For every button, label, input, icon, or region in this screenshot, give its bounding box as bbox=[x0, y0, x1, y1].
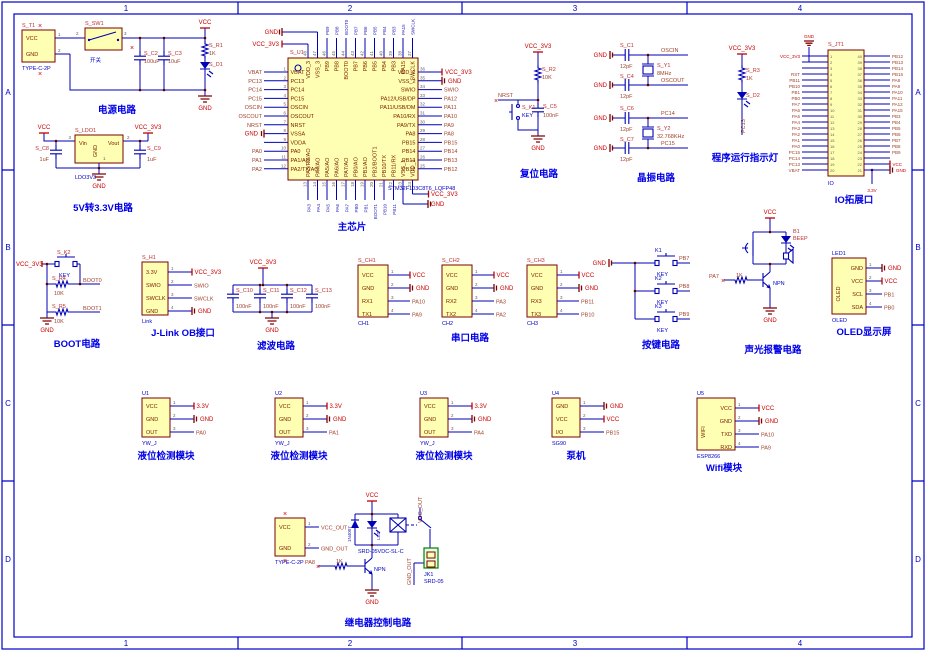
schematic-canvas[interactable]: 1 2 3 4 1 2 3 4 A B C D A B C D S_T1TYPE… bbox=[0, 0, 926, 651]
label: 1K bbox=[746, 76, 753, 82]
module-alarm[interactable]: VCC B1BEEP 1K PA7 × NPN GND 声光报警电路 bbox=[709, 210, 808, 356]
module-crystal[interactable]: GND GND GND GND S_C112pF OSCIN S_Y18MHz … bbox=[594, 43, 688, 184]
label: OSCOUT bbox=[291, 114, 315, 120]
label: PB7 bbox=[354, 61, 360, 71]
io-header-40pin[interactable]: S_JT1IO1VCC_3V3234RST5PB116PB107PB18PB09… bbox=[780, 42, 907, 187]
label: PA4 bbox=[792, 120, 801, 125]
caption-yw2: 液位检测模块 bbox=[270, 450, 328, 462]
label: 28 bbox=[858, 126, 863, 131]
label: NPN bbox=[773, 281, 785, 287]
label: VSS_3 bbox=[316, 61, 322, 78]
shape bbox=[98, 167, 101, 170]
label: OUT bbox=[424, 430, 436, 436]
label: PB6 bbox=[363, 61, 369, 71]
label: GND bbox=[531, 146, 545, 152]
wire bbox=[509, 104, 512, 120]
label: U1 bbox=[142, 391, 149, 397]
label: PA6 bbox=[335, 204, 340, 213]
label: PA0 bbox=[792, 144, 801, 149]
zone-label: A bbox=[5, 88, 11, 97]
label: U5 bbox=[697, 391, 704, 397]
label: VCC_3V3 bbox=[431, 192, 458, 198]
ldo-body[interactable] bbox=[75, 135, 123, 163]
label: PA0 bbox=[291, 149, 301, 155]
uart-ch3-connector[interactable]: S_CH3CH3VCC1VCCGND2GNDRX33PB11TX34PB10 bbox=[527, 258, 599, 327]
label: 3.3V bbox=[146, 270, 158, 276]
label: VCC_3V3 bbox=[195, 270, 222, 276]
label: PB11 bbox=[789, 78, 800, 83]
label: PB9 bbox=[679, 312, 689, 318]
label: PA1 bbox=[329, 431, 339, 437]
label: GND bbox=[279, 417, 291, 423]
label: TYPE-C-2P bbox=[275, 560, 304, 566]
label: PB3 bbox=[392, 61, 398, 71]
label: 42 bbox=[360, 50, 365, 56]
label: 31 bbox=[858, 108, 863, 113]
label: 38 bbox=[398, 50, 403, 56]
gnd-symbol bbox=[763, 308, 777, 314]
label: PA7 bbox=[792, 102, 801, 107]
crystal-8mhz-icon bbox=[642, 64, 654, 76]
label: KEY bbox=[657, 328, 668, 334]
zone-label: 1 bbox=[124, 4, 129, 13]
net-label-nrst: NRST bbox=[498, 93, 514, 99]
shape bbox=[55, 140, 58, 143]
label: LED1 bbox=[832, 251, 846, 257]
label: PA0 bbox=[252, 149, 262, 155]
shape bbox=[134, 145, 146, 159]
module-jlink[interactable]: S_H1Link3.3V1VCC_3V3SWIO2SWIOSWCLK3SWCLK… bbox=[142, 255, 222, 339]
no-erc-mark: × bbox=[130, 45, 134, 52]
shape bbox=[620, 112, 634, 124]
key3-icon bbox=[655, 309, 677, 322]
label: PB5 bbox=[373, 61, 379, 71]
label: PB0/AO bbox=[354, 156, 360, 177]
shape bbox=[517, 117, 520, 120]
label: S_R2 bbox=[542, 67, 556, 73]
label: PB12 bbox=[892, 54, 904, 59]
label: GND bbox=[531, 286, 543, 292]
label: S_T1 bbox=[22, 23, 35, 29]
gnd-symbol bbox=[265, 318, 279, 324]
key1-icon bbox=[655, 253, 677, 266]
label: PC14 bbox=[661, 111, 675, 117]
label: PA6/AO bbox=[335, 157, 341, 177]
label: 3 bbox=[475, 295, 478, 300]
label: 27 bbox=[858, 132, 863, 137]
label: GND bbox=[896, 168, 907, 173]
label: 33 bbox=[858, 96, 863, 101]
label: VCC bbox=[762, 406, 775, 412]
module-pump[interactable]: U4SG90GND1GNDVCC2VCCI/O3PB15 泵机 bbox=[552, 391, 624, 462]
label: VCC_OUT bbox=[418, 496, 424, 523]
label: GND bbox=[279, 546, 291, 552]
label: PB8 bbox=[892, 144, 901, 149]
shape bbox=[117, 39, 119, 41]
label: PB11/RX bbox=[392, 154, 398, 177]
label: PA9 bbox=[412, 313, 422, 319]
label: VCC bbox=[362, 273, 374, 279]
caption-pump: 泵机 bbox=[565, 450, 586, 462]
shape bbox=[427, 561, 435, 567]
label: PB4 bbox=[892, 120, 901, 125]
label: RX2 bbox=[446, 299, 457, 305]
label: PB10 bbox=[789, 84, 801, 89]
module-level-sensor-2[interactable]: U2YW_JVCC13.3VGND2GNDOUT3PA1 液位检测模块 bbox=[270, 391, 347, 462]
label: SWCLK bbox=[146, 296, 166, 302]
outer-border bbox=[2, 2, 924, 649]
shape bbox=[535, 65, 541, 83]
label: S_C10 bbox=[236, 288, 253, 294]
label: 38 bbox=[858, 66, 863, 71]
label: PA8 bbox=[305, 560, 315, 566]
label: 39 bbox=[388, 50, 393, 56]
label: PA4 bbox=[474, 431, 484, 437]
module-oled[interactable]: LED1OLEDOLEDGND1GNDVCC2VCCSCL3PB1SDA4PB0… bbox=[832, 251, 902, 338]
label: PA7/AO bbox=[344, 157, 350, 177]
label: PA8 bbox=[406, 132, 416, 138]
label: S_Y1 bbox=[657, 63, 670, 69]
label: GND bbox=[556, 404, 568, 410]
label: GND bbox=[265, 30, 279, 36]
caption-serial: 串口电路 bbox=[451, 332, 490, 344]
label: 3 bbox=[451, 426, 454, 431]
label: 16 bbox=[830, 144, 835, 149]
shape bbox=[79, 283, 82, 286]
label: PA5/AO bbox=[325, 157, 331, 177]
npn-transistor-icon bbox=[763, 272, 770, 288]
label: U3 bbox=[420, 391, 427, 397]
jlink-header[interactable]: S_H1Link3.3V1VCC_3V3SWIO2SWIOSWCLK3SWCLK… bbox=[142, 255, 222, 325]
shape bbox=[620, 79, 634, 91]
refdes: S_SW1 bbox=[85, 21, 104, 27]
label: PB13 bbox=[444, 158, 457, 164]
wire bbox=[390, 518, 406, 532]
label: 1 bbox=[308, 521, 311, 526]
shape bbox=[620, 142, 634, 154]
zone-label: 3 bbox=[573, 4, 578, 13]
label: VDD_3 bbox=[306, 61, 312, 79]
label: 1 bbox=[171, 266, 174, 271]
module-serial[interactable]: S_CH1CH1VCC1VCCGND2GNDRX13PA10TX14PA9 S_… bbox=[358, 258, 599, 344]
label: YW_J bbox=[142, 441, 157, 447]
label: PB14 bbox=[892, 66, 904, 71]
uart-ch2-connector[interactable]: S_CH2CH2VCC1VCCGND2GNDRX23PA3TX24PA2 bbox=[442, 258, 514, 327]
label: SWCLK bbox=[411, 61, 417, 81]
module-reset[interactable]: VCC_3V3 S_R210K NRST × S_K1KEY S_C5100nF… bbox=[494, 44, 559, 180]
module-io-expansion[interactable]: GND 3.3V S_JT1IO1VCC_3V3234RST5PB116PB10… bbox=[780, 34, 907, 206]
label: 2 bbox=[283, 75, 286, 80]
label: 3 bbox=[306, 426, 309, 431]
label: S_R1 bbox=[209, 43, 223, 49]
label: PA11 bbox=[444, 105, 457, 111]
module-power-supply[interactable]: S_T1TYPE-C-2PVCC1GND2 VCC GND S_SW1 开关 2… bbox=[22, 20, 223, 116]
module-wifi[interactable]: U5ESP8266WIFIVCC1VCCGND2GNDTXD3PA10RXD4P… bbox=[697, 391, 779, 474]
caption-yw3: 液位检测模块 bbox=[415, 450, 473, 462]
wire bbox=[610, 51, 613, 152]
label: GND bbox=[40, 328, 54, 334]
label: PA9 bbox=[892, 84, 901, 89]
module-run-led[interactable]: VCC_3V3 S_R31K S_D2 PC13 程序运行指示灯 bbox=[712, 46, 779, 164]
label: SWIO bbox=[146, 283, 161, 289]
wifi-connector[interactable]: U5ESP8266WIFIVCC1VCCGND2GNDTXD3PA10RXD4P… bbox=[697, 391, 779, 460]
label: S_C2 bbox=[144, 51, 158, 57]
label: VCC bbox=[531, 273, 543, 279]
label: TX1 bbox=[362, 312, 372, 318]
label: VCC_3V3 bbox=[252, 42, 279, 48]
label: PC15 bbox=[248, 96, 262, 102]
label: VCC bbox=[146, 404, 158, 410]
label: 21 bbox=[379, 182, 384, 188]
label: PA8 bbox=[892, 78, 901, 83]
label: GND bbox=[594, 53, 608, 59]
usb-typec-connector[interactable]: S_T1TYPE-C-2PVCC1GND2 bbox=[22, 23, 70, 72]
label: 48 bbox=[303, 50, 308, 56]
zone-label: 4 bbox=[798, 4, 803, 13]
label: 32 bbox=[858, 102, 863, 107]
label: 8MHz bbox=[657, 71, 672, 77]
label: 18 bbox=[350, 182, 355, 188]
shape bbox=[163, 37, 166, 40]
label: 1uF bbox=[40, 157, 50, 163]
label: PB3 bbox=[392, 26, 397, 35]
label: 3 bbox=[124, 31, 127, 36]
label: 100nF bbox=[315, 304, 331, 310]
label: SWIO bbox=[194, 284, 209, 290]
label: 1 bbox=[173, 400, 176, 405]
label: 8 bbox=[283, 128, 286, 133]
label: 4 bbox=[283, 93, 286, 98]
module-ldo[interactable]: VCC VCC_3V3 S_LDO1 Vin Vout GND 3 2 1 S_… bbox=[35, 125, 162, 214]
label: 20 bbox=[369, 182, 374, 188]
shape bbox=[634, 262, 637, 265]
label: PA9 bbox=[444, 123, 454, 129]
label: 34 bbox=[420, 84, 426, 89]
label: 1 bbox=[451, 400, 454, 405]
label: S_C6 bbox=[620, 106, 634, 112]
label: 12pF bbox=[620, 64, 633, 70]
label: 40 bbox=[379, 50, 384, 56]
label: 1 bbox=[58, 32, 61, 37]
label: 32 bbox=[420, 102, 426, 107]
module-boot[interactable]: VCC_3V3 S_K2 KEY S_R410K BOOT0 S_R510K B… bbox=[16, 250, 102, 350]
label: BOOT0 bbox=[344, 19, 349, 35]
label: S_CH1 bbox=[358, 258, 376, 264]
label: SWCLK bbox=[411, 19, 416, 35]
label: 17 bbox=[341, 182, 346, 188]
label: TYPE-C-2P bbox=[22, 66, 51, 72]
label: PA5 bbox=[326, 204, 331, 213]
label: 2 bbox=[308, 542, 311, 547]
label: PB1 bbox=[791, 90, 800, 95]
label: 45 bbox=[331, 50, 336, 56]
label: CH3 bbox=[527, 321, 538, 327]
shape bbox=[371, 544, 374, 547]
label: PB11 bbox=[581, 300, 594, 306]
label: 31 bbox=[420, 111, 426, 116]
label: PA10/RX bbox=[393, 114, 416, 120]
label: OLED bbox=[832, 318, 847, 324]
label: PB3 bbox=[892, 114, 901, 119]
label: S_C12 bbox=[290, 288, 307, 294]
label: 37 bbox=[858, 72, 863, 77]
shape bbox=[286, 284, 289, 287]
label: VCC bbox=[366, 493, 379, 499]
label: 10K bbox=[54, 319, 64, 325]
label: RX3 bbox=[531, 299, 542, 305]
label: 13 bbox=[303, 182, 308, 188]
uart-ch1-connector[interactable]: S_CH1CH1VCC1VCCGND2GNDRX13PA10TX14PA9 bbox=[358, 258, 430, 327]
label: 4 bbox=[171, 305, 174, 310]
label: 1K bbox=[336, 559, 343, 565]
label: VCC_OUT bbox=[321, 526, 348, 532]
label: GND bbox=[198, 309, 212, 315]
zone-label: 1 bbox=[124, 639, 129, 648]
label: 1 bbox=[306, 400, 309, 405]
label: 3 bbox=[583, 426, 586, 431]
label: 22 bbox=[388, 182, 393, 188]
label: GND bbox=[888, 266, 902, 272]
label: S_K1 bbox=[522, 105, 535, 111]
label: PB10 bbox=[383, 204, 388, 216]
label: PC15 bbox=[661, 141, 675, 147]
zone-label: D bbox=[915, 555, 921, 564]
label: CH1 bbox=[358, 321, 369, 327]
module-filter[interactable]: VCC_3V3 S_C10100nF S_C11100nF S_C12100nF… bbox=[227, 260, 332, 352]
label: K3 bbox=[655, 304, 662, 310]
label: PA7 bbox=[709, 274, 719, 280]
no-erc-mark: × bbox=[721, 278, 725, 285]
gnd-symbol bbox=[40, 318, 54, 324]
flyback-diode-icon bbox=[351, 520, 359, 528]
label: S_C1 bbox=[620, 43, 634, 49]
label: RXD bbox=[720, 445, 732, 451]
label: VCC bbox=[851, 279, 863, 285]
label: GND bbox=[146, 309, 158, 315]
label: VCC_3V3 bbox=[445, 70, 472, 76]
label: S_C4 bbox=[620, 74, 634, 80]
label: GND bbox=[362, 286, 374, 292]
label: 6 bbox=[283, 111, 286, 116]
gnd-symbol bbox=[198, 96, 212, 102]
label: PB7 bbox=[892, 138, 901, 143]
label: 2 bbox=[306, 413, 309, 418]
label: GND bbox=[765, 419, 779, 425]
module-level-sensor-3[interactable]: U3YW_JVCC13.3VGND2GNDOUT3PA4 液位检测模块 bbox=[415, 391, 492, 462]
label: 3 bbox=[738, 428, 741, 433]
oled-connector[interactable]: LED1OLEDOLEDGND1GNDVCC2VCCSCL3PB1SDA4PB0 bbox=[832, 251, 902, 324]
module-relay[interactable]: TYPE-C-2PVCC1VCC_OUTGND2GND_OUT VCC 1N40… bbox=[275, 493, 444, 629]
label: 24 bbox=[858, 150, 863, 155]
label: VBAT bbox=[789, 168, 801, 173]
caption-boot: BOOT电路 bbox=[54, 338, 101, 350]
label: S_C13 bbox=[315, 288, 332, 294]
label: TXD bbox=[721, 432, 732, 438]
mcu-stm32f103[interactable]: S_U1STM32F103C8T6_LQFP48VBAT1VBATPC132PC… bbox=[238, 19, 472, 219]
zone-label: B bbox=[915, 243, 920, 252]
gnd-symbol bbox=[365, 590, 379, 596]
label: VBAT bbox=[248, 70, 263, 76]
label: 12pF bbox=[620, 127, 633, 133]
level-sensor2-connector[interactable]: U2YW_JVCC13.3VGND2GNDOUT3PA1 bbox=[275, 391, 347, 447]
label: Vout bbox=[108, 141, 119, 147]
label: S_H1 bbox=[142, 255, 156, 261]
shape bbox=[271, 311, 274, 314]
label: OSCIN bbox=[291, 105, 308, 111]
label: 22 bbox=[858, 162, 863, 167]
pump-connector[interactable]: U4SG90GND1GNDVCC2VCCI/O3PB15 bbox=[552, 391, 624, 447]
zone-ticks bbox=[2, 2, 924, 649]
label: BOOT0 bbox=[83, 278, 102, 284]
label: RX1 bbox=[362, 299, 373, 305]
module-level-sensor-1[interactable]: U1YW_JVCC13.3VGND2GNDOUT3PA0 液位检测模块 bbox=[137, 391, 214, 462]
label: 1 bbox=[475, 269, 478, 274]
label: 13 bbox=[830, 126, 835, 131]
no-erc-mark: × bbox=[494, 98, 498, 105]
label: SWIO bbox=[401, 88, 416, 94]
label: GND bbox=[93, 145, 99, 157]
label: JK1 bbox=[424, 572, 433, 578]
label: 21 bbox=[858, 168, 863, 173]
label: PC15 bbox=[291, 96, 305, 102]
label: PA8 bbox=[444, 132, 454, 138]
label: S_D1 bbox=[209, 62, 223, 68]
mosfet-icon bbox=[742, 240, 753, 256]
label: PB0 bbox=[791, 96, 800, 101]
label: RST bbox=[791, 72, 800, 77]
label: PB7 bbox=[354, 26, 359, 35]
label: PB2/BOOT1 bbox=[373, 146, 379, 177]
label: 1K bbox=[209, 51, 216, 57]
level-sensor3-connector[interactable]: U3YW_JVCC13.3VGND2GNDOUT3PA4 bbox=[420, 391, 492, 447]
label: GND bbox=[851, 266, 863, 272]
module-mcu[interactable]: S_U1STM32F103C8T6_LQFP48VBAT1VBATPC132PC… bbox=[238, 19, 472, 233]
wire bbox=[724, 218, 786, 308]
label: VCC_3V3 bbox=[250, 260, 277, 266]
label: 1 bbox=[283, 67, 286, 72]
label: PB15 bbox=[402, 140, 415, 146]
label: GND bbox=[594, 83, 608, 89]
label: 3 bbox=[391, 295, 394, 300]
label: 1 bbox=[560, 269, 563, 274]
caption-power: 电源电路 bbox=[98, 104, 137, 116]
level-sensor1-connector[interactable]: U1YW_JVCC13.3VGND2GNDOUT3PA0 bbox=[142, 391, 214, 447]
label: 36 bbox=[420, 67, 426, 72]
label: VCC bbox=[497, 273, 510, 279]
label: PB9 bbox=[325, 61, 331, 71]
label: GND bbox=[763, 318, 777, 324]
label: PA2 bbox=[496, 313, 506, 319]
caption-chip: 主芯片 bbox=[338, 221, 367, 233]
label: 26 bbox=[858, 138, 863, 143]
no-erc-mark: × bbox=[283, 558, 287, 565]
label: PB5 bbox=[373, 26, 378, 35]
zone-label: 4 bbox=[798, 639, 803, 648]
label: 30 bbox=[858, 114, 863, 119]
caption-wifi: Wifi模块 bbox=[706, 462, 743, 474]
label: U2 bbox=[275, 391, 282, 397]
label: PA12/USB/DP bbox=[380, 96, 415, 102]
label: 23 bbox=[398, 182, 403, 188]
label: PA10 bbox=[444, 114, 457, 120]
label: S_C3 bbox=[168, 51, 182, 57]
label: 4 bbox=[391, 308, 394, 313]
module-keys[interactable]: GND K1KEYPB7 K2KEYPB8 K3KEYPB9 按键电路 bbox=[593, 248, 690, 351]
label: VBAT bbox=[291, 70, 306, 76]
label: GND bbox=[416, 286, 430, 292]
label: PB4 bbox=[382, 26, 387, 35]
label: B1 bbox=[793, 229, 800, 235]
